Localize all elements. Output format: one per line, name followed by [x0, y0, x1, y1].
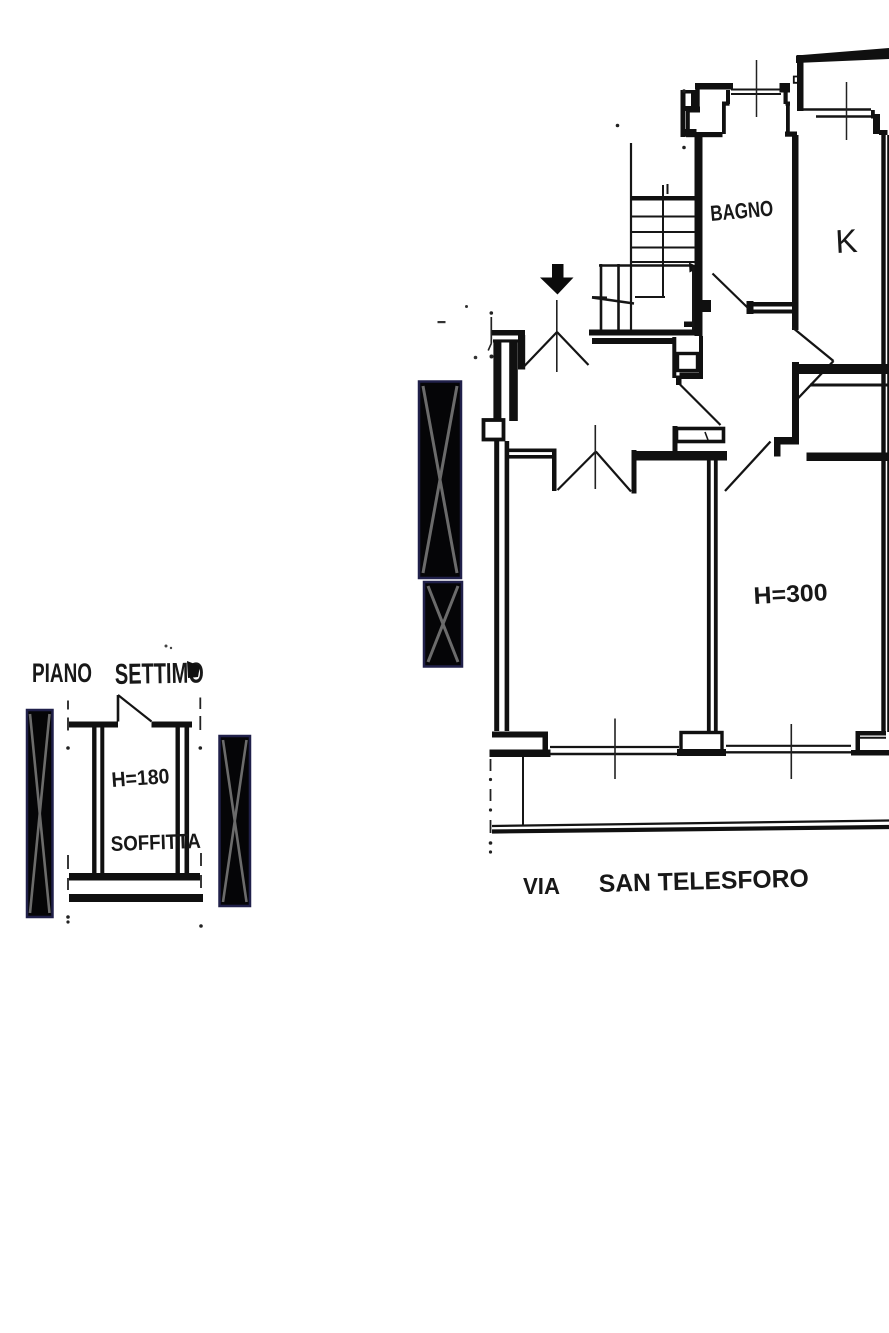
svg-text:SAN TELESFORO: SAN TELESFORO	[598, 865, 809, 898]
svg-text:K: K	[834, 222, 858, 260]
svg-text:PIANO: PIANO	[32, 658, 92, 688]
svg-text:BAGNO: BAGNO	[709, 196, 774, 226]
svg-text:SOFFITTA: SOFFITTA	[110, 830, 201, 856]
svg-text:H=300: H=300	[753, 579, 828, 610]
svg-text:H=180: H=180	[111, 765, 170, 792]
svg-text:VIA: VIA	[523, 873, 560, 899]
